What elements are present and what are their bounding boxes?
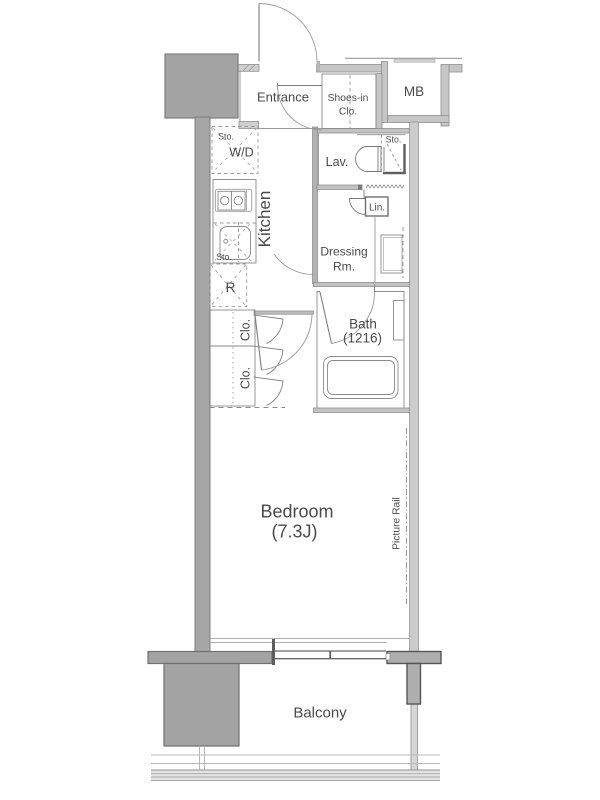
svg-text:Sto.: Sto.	[386, 135, 402, 145]
svg-text:Sto.: Sto.	[218, 132, 234, 142]
svg-text:Picture Rail: Picture Rail	[392, 497, 403, 550]
svg-text:Entrance: Entrance	[257, 90, 309, 105]
svg-text:(7.3J): (7.3J)	[271, 522, 317, 542]
svg-text:Dressing: Dressing	[320, 245, 367, 259]
svg-text:Shoes-in: Shoes-in	[328, 93, 369, 104]
svg-text:(1216): (1216)	[343, 331, 382, 346]
svg-text:Bath: Bath	[349, 317, 377, 332]
svg-text:Bedroom: Bedroom	[260, 502, 333, 522]
svg-text:Balcony: Balcony	[293, 705, 347, 722]
svg-text:Kitchen: Kitchen	[255, 191, 274, 248]
svg-text:Clo.: Clo.	[239, 367, 253, 389]
svg-text:MB: MB	[404, 84, 424, 99]
svg-text:Sto.: Sto.	[216, 252, 232, 262]
svg-text:Clo.: Clo.	[339, 107, 357, 118]
svg-text:W/D: W/D	[229, 146, 253, 160]
svg-text:Lin.: Lin.	[369, 203, 385, 214]
svg-text:R: R	[226, 280, 236, 295]
svg-text:Clo.: Clo.	[239, 319, 253, 341]
svg-text:Lav.: Lav.	[326, 155, 349, 169]
svg-text:Rm.: Rm.	[333, 260, 355, 274]
